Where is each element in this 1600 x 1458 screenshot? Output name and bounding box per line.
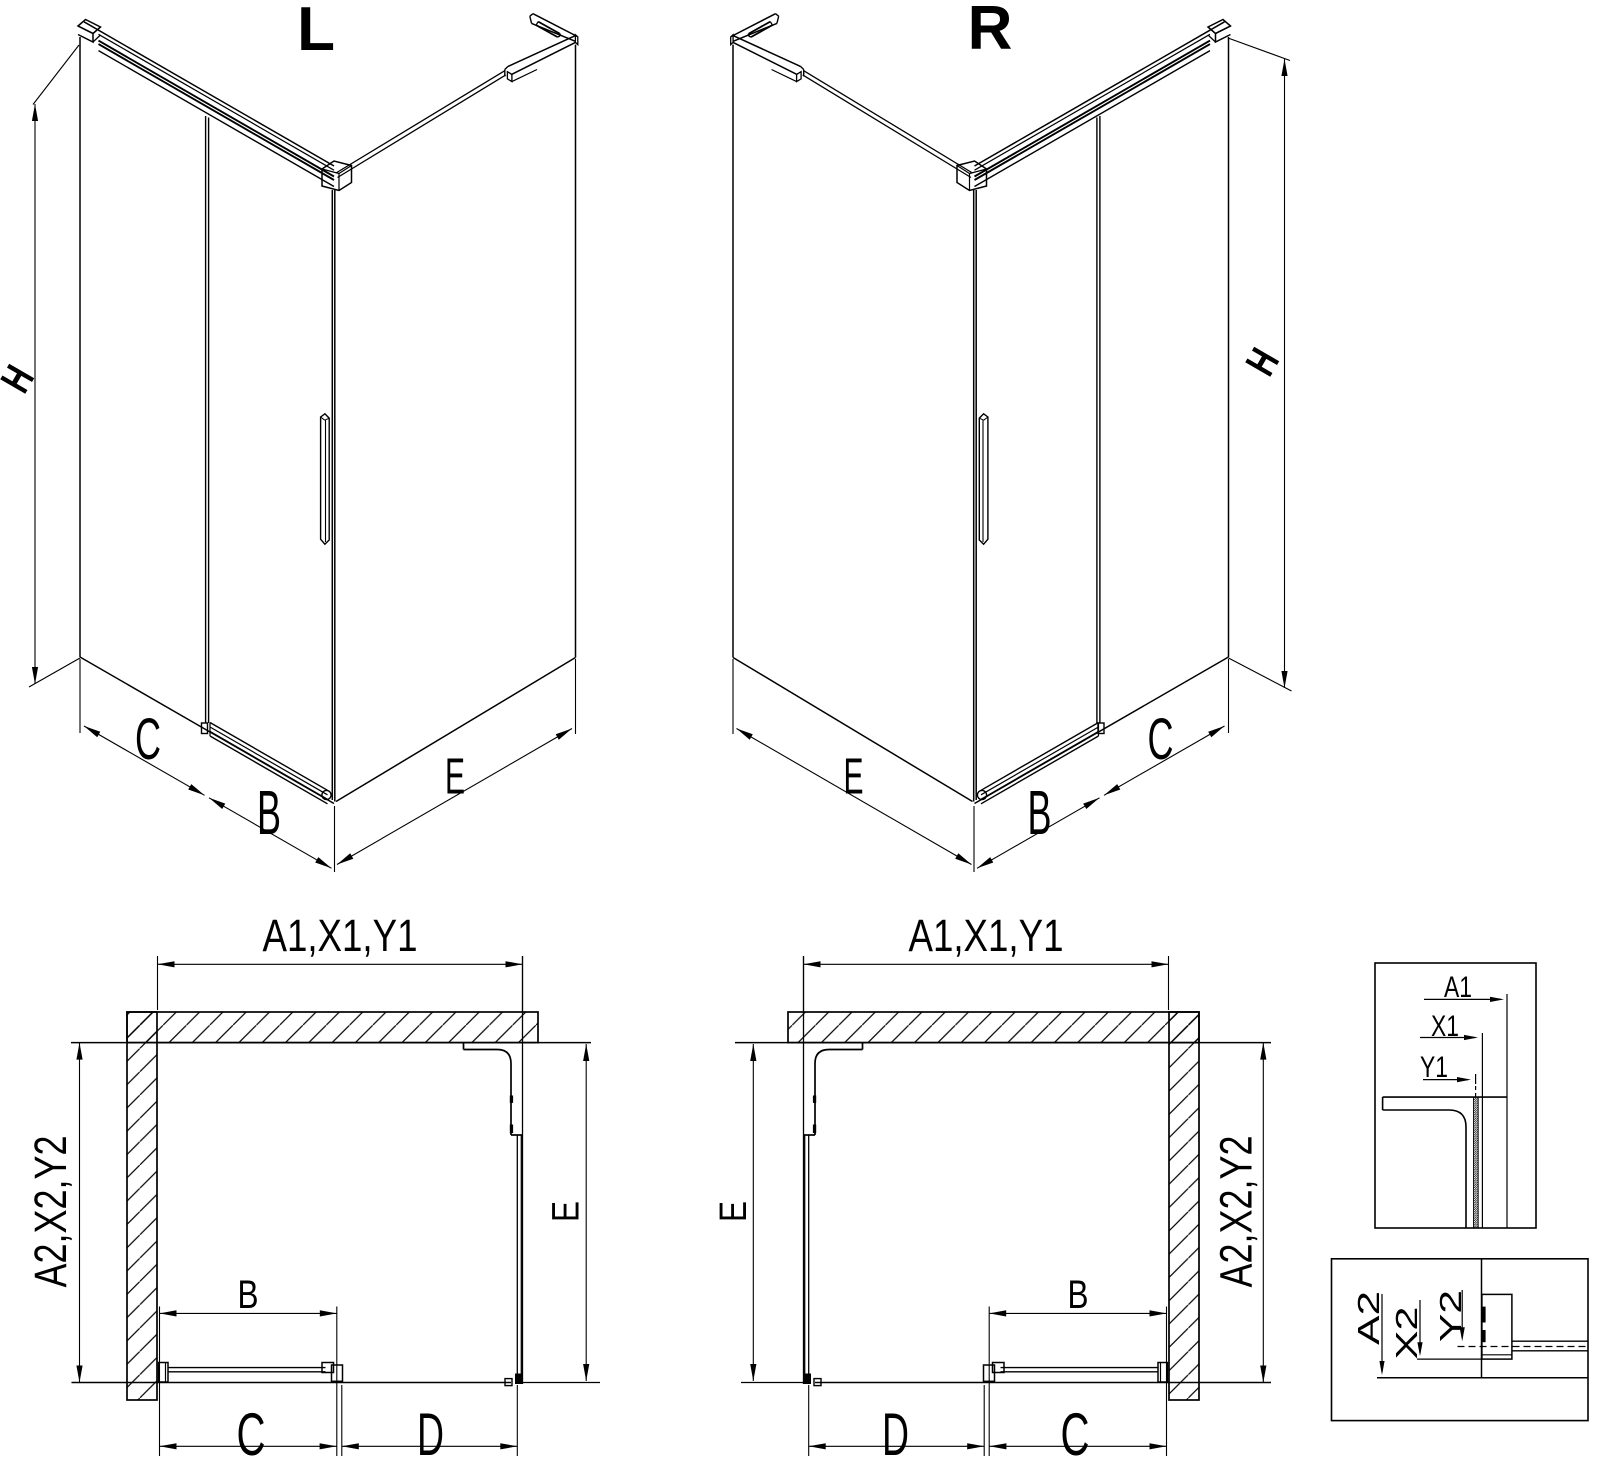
- svg-text:E: E: [545, 1201, 587, 1222]
- svg-text:A1,X1,Y1: A1,X1,Y1: [263, 910, 418, 961]
- svg-text:B: B: [238, 1273, 259, 1317]
- svg-text:E: E: [713, 1201, 755, 1222]
- svg-text:B: B: [1068, 1273, 1089, 1317]
- svg-text:C: C: [237, 1401, 266, 1458]
- svg-text:B: B: [257, 779, 281, 848]
- svg-text:A2: A2: [1351, 1291, 1386, 1345]
- svg-text:X2: X2: [1389, 1307, 1424, 1360]
- svg-text:C: C: [135, 707, 161, 772]
- svg-text:B: B: [1028, 779, 1052, 848]
- svg-text:E: E: [844, 748, 864, 805]
- svg-text:E: E: [445, 748, 465, 805]
- svg-text:A2,X2,Y2: A2,X2,Y2: [25, 1136, 76, 1288]
- svg-text:L: L: [297, 0, 335, 64]
- svg-text:D: D: [417, 1401, 444, 1458]
- svg-text:D: D: [882, 1401, 909, 1458]
- svg-text:C: C: [1148, 707, 1174, 772]
- svg-text:R: R: [968, 0, 1013, 63]
- svg-text:A1,X1,Y1: A1,X1,Y1: [909, 910, 1064, 961]
- svg-text:C: C: [1061, 1401, 1090, 1458]
- svg-text:A2,X2,Y2: A2,X2,Y2: [1210, 1136, 1261, 1288]
